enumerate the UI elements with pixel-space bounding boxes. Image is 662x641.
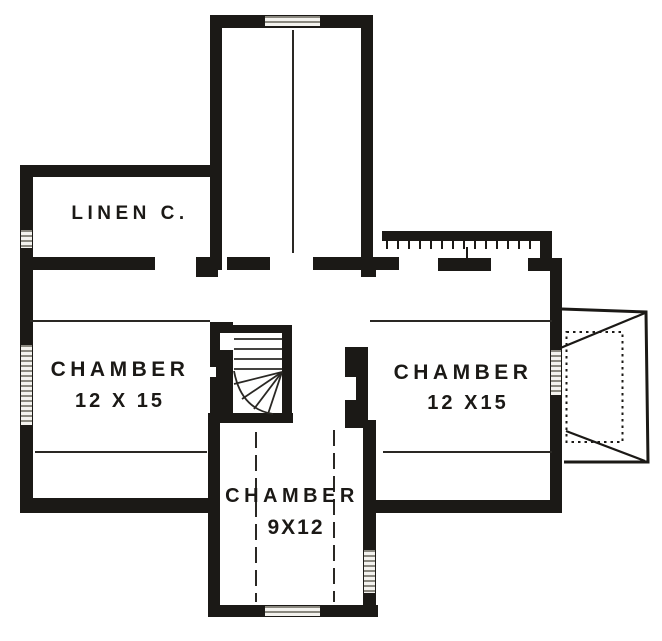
room-size-chamber-bottom: 9X12 xyxy=(211,517,381,538)
plan-line-drawings xyxy=(0,0,662,641)
room-label-chamber-bottom: CHAMBER xyxy=(207,486,377,506)
room-size-chamber-left: 12 X 15 xyxy=(35,391,205,411)
room-label-chamber-right: CHAMBER xyxy=(378,362,548,383)
room-size-chamber-right: 12 X15 xyxy=(383,393,553,413)
winder-stairs-icon xyxy=(234,339,282,414)
floor-plan: LINEN C. CHAMBER 12 X 15 CHAMBER 12 X15 … xyxy=(0,0,662,641)
room-label-chamber-left: CHAMBER xyxy=(35,359,205,380)
bay-window-roof-icon xyxy=(558,309,648,462)
room-label-linen-closet: LINEN C. xyxy=(40,204,220,223)
